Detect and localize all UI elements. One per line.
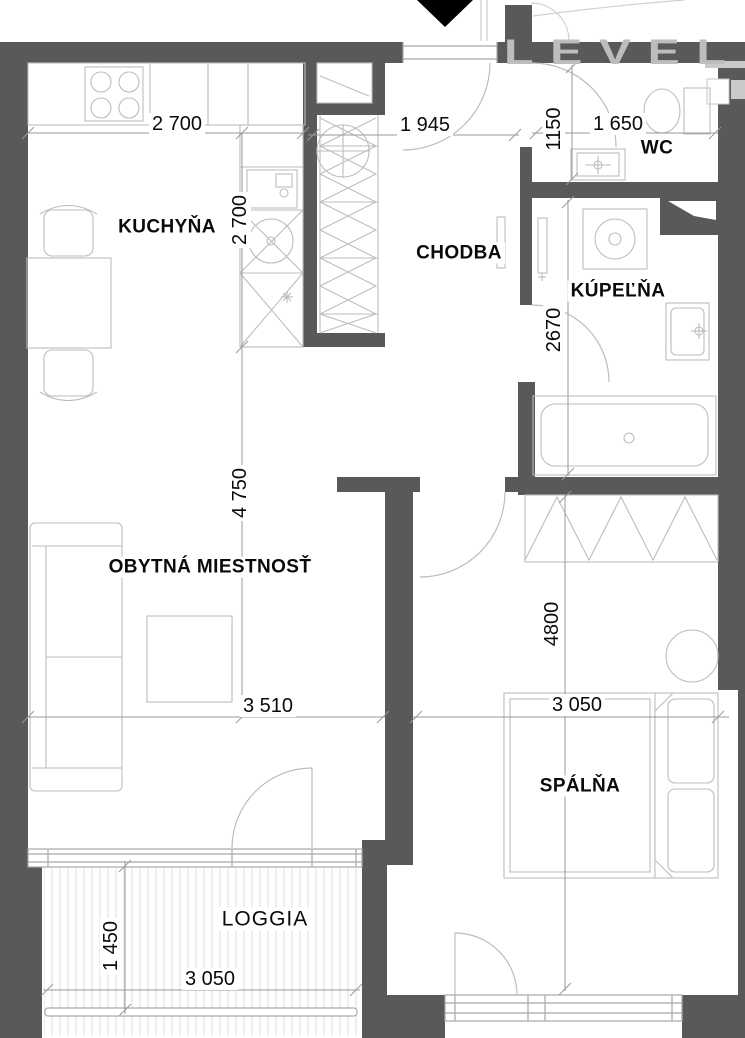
room-label-wc: WC	[638, 138, 676, 159]
plan-drawing	[0, 0, 745, 1038]
dim-bedroom-depth: 4800	[541, 599, 563, 650]
bedroom-wardrobe-icon	[525, 495, 718, 562]
room-label-loggia: LOGGIA	[219, 908, 312, 931]
shaft-niche	[317, 63, 372, 103]
dim-loggia-width: 3 050	[182, 968, 238, 990]
room-label-chodba: CHODBA	[413, 243, 505, 264]
loggia-railing	[45, 1008, 357, 1016]
ventilation-fan-icon	[317, 124, 370, 178]
entrance-door-swing	[403, 63, 490, 150]
dim-kitchen-depth: 2 700	[229, 192, 251, 248]
closet-fixtures	[317, 63, 378, 333]
bathtub-icon	[533, 396, 716, 475]
toilet-icon	[644, 88, 710, 134]
dim-bathroom-depth: 2670	[543, 305, 565, 356]
nightstand	[666, 630, 718, 682]
dim-bedroom-width: 3 050	[549, 694, 605, 716]
bathroom-radiator	[538, 218, 547, 273]
dim-wc-depth: 1150	[543, 104, 565, 153]
entrance-arrow-icon	[417, 0, 473, 27]
bedroom-window-door-swing	[455, 933, 517, 995]
room-label-kupelna: KÚPEĽŇA	[568, 281, 669, 302]
pillow	[668, 789, 714, 872]
dishwasher-icon	[240, 273, 303, 347]
dining-chair	[40, 206, 97, 257]
stove-icon	[85, 67, 143, 121]
room-label-obytna-miestnost: OBYTNÁ MIESTNOSŤ	[106, 557, 315, 578]
wc-sink-icon	[571, 149, 625, 180]
loggia-door-swing	[232, 768, 312, 848]
washing-machine-icon	[583, 209, 647, 269]
floor-plan: LEVEL KUCHYŇA CHODBA WC KÚPEĽŇA OBYTNÁ M…	[0, 0, 745, 1038]
bedroom-fixtures	[504, 495, 718, 878]
dim-wc-width: 1 650	[590, 113, 646, 135]
room-label-kuchyna: KUCHYŇA	[115, 217, 219, 238]
dim-kitchen-width: 2 700	[149, 113, 205, 135]
dim-living-width: 3 510	[240, 695, 296, 717]
coffee-table	[147, 616, 232, 702]
dining-chair	[40, 350, 97, 401]
dim-loggia-depth: 1 450	[100, 918, 122, 974]
dim-living-depth: 4 750	[229, 465, 251, 521]
loggia-floor	[44, 868, 360, 1035]
watermark-logo: LEVEL	[504, 36, 742, 70]
bedroom-door-swing	[420, 492, 505, 577]
washbasin-icon	[666, 303, 709, 360]
kitchen-appliance-icon	[247, 170, 297, 208]
room-label-spalna: SPÁLŇA	[537, 776, 624, 797]
dim-hallway-width: 1 945	[397, 114, 453, 136]
pillow	[668, 699, 714, 783]
dining-table	[27, 258, 111, 348]
